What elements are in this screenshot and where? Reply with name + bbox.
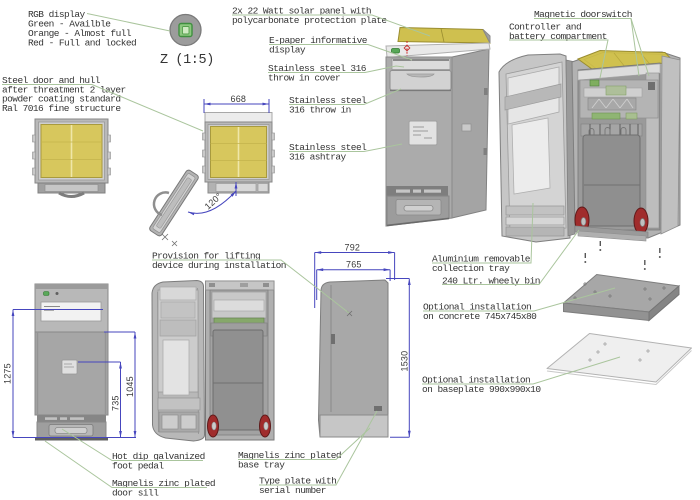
svg-text:base tray: base tray bbox=[238, 460, 285, 471]
svg-text:serial number: serial number bbox=[259, 485, 326, 496]
svg-text:Red - Full and locked: Red - Full and locked bbox=[28, 38, 136, 49]
svg-text:throw in cover: throw in cover bbox=[268, 73, 340, 84]
svg-text:polycarbonate protection plate: polycarbonate protection plate bbox=[232, 15, 387, 26]
svg-text:1275: 1275 bbox=[3, 363, 13, 384]
svg-text:door sill: door sill bbox=[112, 488, 159, 499]
svg-text:668: 668 bbox=[231, 94, 247, 104]
svg-text:765: 765 bbox=[346, 260, 362, 270]
svg-text:316 throw in: 316 throw in bbox=[289, 105, 351, 116]
svg-text:1530: 1530 bbox=[400, 351, 410, 372]
svg-text:1045: 1045 bbox=[125, 376, 135, 397]
svg-text:792: 792 bbox=[345, 243, 361, 253]
svg-text:foot pedal: foot pedal bbox=[112, 461, 164, 472]
svg-text:device during installation: device during installation bbox=[152, 260, 286, 271]
svg-text:Z (1:5): Z (1:5) bbox=[160, 53, 214, 68]
svg-text:on concrete 745x745x80: on concrete 745x745x80 bbox=[423, 311, 537, 322]
svg-text:Ral 7016 fine structure: Ral 7016 fine structure bbox=[2, 103, 121, 114]
svg-text:display: display bbox=[269, 45, 306, 56]
svg-text:316 ashtray: 316 ashtray bbox=[289, 152, 347, 163]
svg-text:735: 735 bbox=[111, 395, 121, 411]
svg-text:collection tray: collection tray bbox=[432, 263, 510, 274]
svg-text:on baseplate 990x990x10: on baseplate 990x990x10 bbox=[422, 384, 541, 395]
